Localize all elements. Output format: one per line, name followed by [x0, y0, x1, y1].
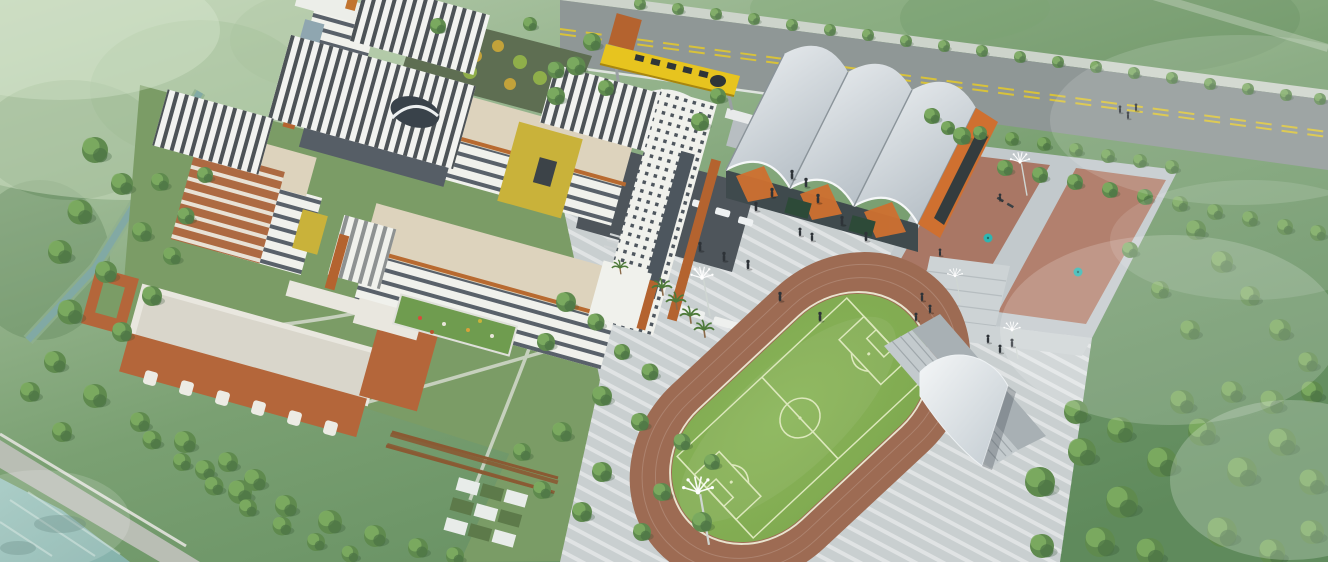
campus-scene — [0, 0, 1328, 562]
campus-aerial-rendering — [0, 0, 1328, 562]
gate-emblem — [710, 75, 726, 87]
